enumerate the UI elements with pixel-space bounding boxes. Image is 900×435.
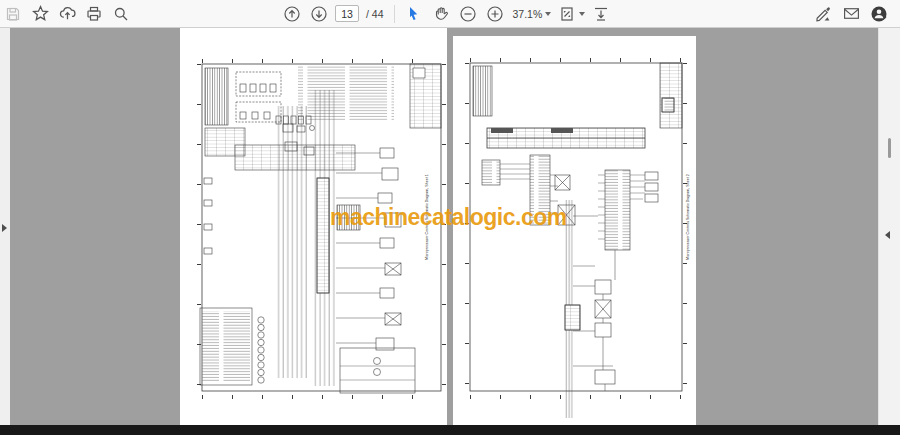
sheet2-vertical-title: Microprocessor Controls Schematic Diagra… xyxy=(686,174,690,260)
email-icon[interactable] xyxy=(840,3,862,25)
zoom-in-icon[interactable] xyxy=(484,3,506,25)
fit-page-dropdown[interactable] xyxy=(556,3,585,25)
toolbar: 13 / 44 37.1% xyxy=(0,0,900,28)
document-viewer: Microprocessor Controls Schematic Diagra… xyxy=(0,28,900,425)
share-upload-icon[interactable] xyxy=(56,3,78,25)
toolbar-center-group: 13 / 44 37.1% xyxy=(281,0,612,27)
vertical-scrollbar-thumb[interactable] xyxy=(888,138,891,158)
toolbar-left-group xyxy=(2,0,132,27)
zoom-level-dropdown[interactable]: 37.1% xyxy=(511,8,552,20)
hand-tool-icon[interactable] xyxy=(430,3,452,25)
pdf-viewer-window: 13 / 44 37.1% xyxy=(0,0,900,435)
save-icon[interactable] xyxy=(2,3,24,25)
account-icon[interactable] xyxy=(868,3,890,25)
bookmark-star-icon[interactable] xyxy=(29,3,51,25)
select-tool-icon[interactable] xyxy=(403,3,425,25)
sidebar-expand-icon[interactable] xyxy=(2,224,7,232)
scroll-mode-icon[interactable] xyxy=(590,3,612,25)
watermark-text: machinecatalogic.com xyxy=(330,204,567,231)
page-up-icon[interactable] xyxy=(281,3,303,25)
search-icon[interactable] xyxy=(110,3,132,25)
tools-expand-icon[interactable] xyxy=(885,231,890,239)
print-icon[interactable] xyxy=(83,3,105,25)
chevron-down-icon xyxy=(545,12,551,16)
tools-collapsed-rail[interactable] xyxy=(878,28,900,425)
fit-page-icon xyxy=(556,3,578,25)
zoom-level-label: 37.1% xyxy=(511,8,545,20)
sidebar-collapsed-rail[interactable] xyxy=(0,28,10,425)
window-bottom-bar xyxy=(0,425,900,435)
toolbar-right-group xyxy=(812,0,890,27)
toolbar-separator xyxy=(394,5,395,23)
page-total-label: / 44 xyxy=(364,8,386,20)
page-down-icon[interactable] xyxy=(308,3,330,25)
fill-sign-icon[interactable] xyxy=(812,3,834,25)
page-number-input[interactable]: 13 xyxy=(335,5,359,22)
zoom-out-icon[interactable] xyxy=(457,3,479,25)
chevron-down-icon xyxy=(579,12,585,16)
